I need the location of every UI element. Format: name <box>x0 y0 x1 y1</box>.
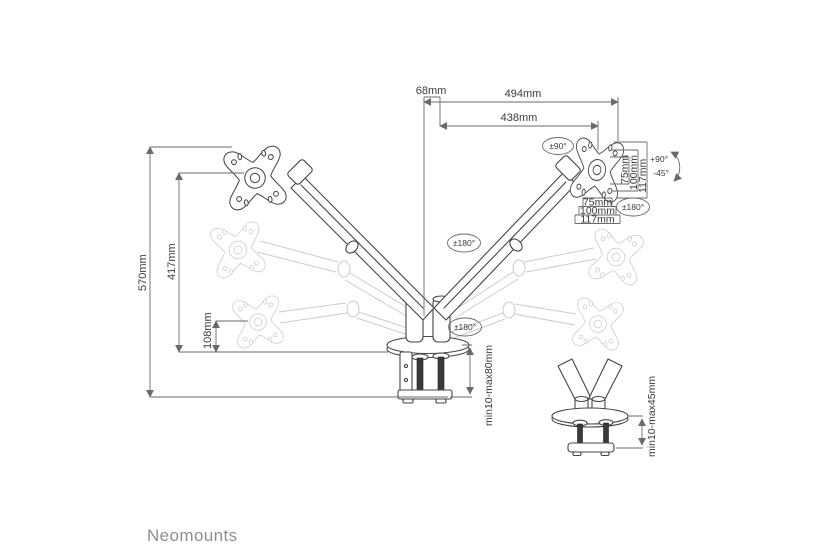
clamp-bolt-left <box>417 358 423 392</box>
rotation-label-base-rotate: ±180° <box>454 322 476 332</box>
dim-label-clamp-range: min10-max80mm <box>483 345 495 426</box>
dim-label-reach-arm: 438mm <box>501 112 538 124</box>
rotation-label-tilt-up: +90° <box>650 154 668 164</box>
clamp-bolt-right <box>438 357 444 393</box>
ghost-positions <box>210 221 645 351</box>
dim-label-vesa-v-117: 117mm <box>637 159 649 193</box>
dim-label-reach-full: 494mm <box>505 88 542 100</box>
desk-clamp-base <box>387 337 469 404</box>
tilt-hinge-left <box>287 159 314 186</box>
dim-label-offset: 68mm <box>416 85 447 97</box>
ghost-vesa-plate-left-upper <box>210 221 267 279</box>
grommet-mount-diagram: min10-max45mm <box>552 359 658 457</box>
monitor-arms <box>287 155 582 342</box>
dim-label-vesa-h-117: 117mm <box>580 214 614 226</box>
vesa-plate-left <box>223 145 287 211</box>
rotation-label-head-swivel: ±90° <box>549 141 567 151</box>
mount-diagram: 68mm 494mm 438mm 570mm 417mm 108mm 75mm … <box>0 0 825 550</box>
dim-label-grommet-range: min10-max45mm <box>646 376 658 457</box>
dim-label-height-min: 108mm <box>202 312 214 349</box>
ghost-vesa-plate-left-lower <box>232 295 284 349</box>
rotation-label-tilt-down: -45° <box>653 168 669 178</box>
gas-spring-arm-left <box>291 176 434 320</box>
ghost-vesa-plate-right-lower <box>572 297 624 351</box>
product-diagram-page: 68mm 494mm 438mm 570mm 417mm 108mm 75mm … <box>0 0 825 550</box>
rotation-label-vesa-rotate: ±180° <box>622 202 644 212</box>
rotation-label-arm-rotate: ±180° <box>453 238 475 248</box>
brand-logo: Neomounts <box>147 526 238 545</box>
dim-label-height-mid: 417mm <box>166 243 178 280</box>
dim-label-height-max: 570mm <box>137 254 149 291</box>
ghost-vesa-plate-right-upper <box>588 228 645 286</box>
